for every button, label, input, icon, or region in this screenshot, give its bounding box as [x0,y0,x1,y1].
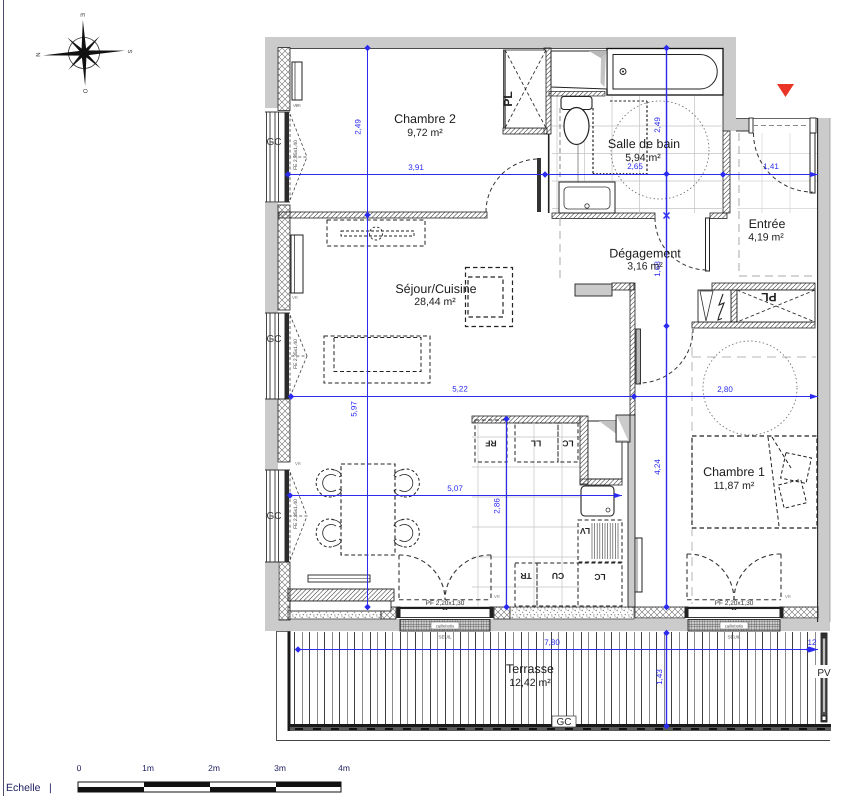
svg-text:1,41: 1,41 [763,162,779,171]
svg-text:VR: VR [494,594,500,599]
svg-text:0: 0 [77,763,82,773]
svg-text:N: N [34,52,41,57]
svg-text:S: S [126,49,133,53]
svg-text:5,22: 5,22 [452,385,468,394]
svg-text:LC: LC [594,572,605,582]
svg-text:PL: PL [501,91,515,106]
svg-text:VR: VR [293,103,299,108]
svg-text:PV: PV [817,668,831,679]
svg-text:TR: TR [520,571,531,581]
svg-text:2,80: 2,80 [717,385,733,394]
svg-text:GC: GC [267,334,282,345]
svg-text:VR: VR [292,295,298,300]
svg-text:GC: GC [557,717,572,728]
svg-text:VR: VR [295,461,301,466]
svg-text:GC: GC [267,137,282,148]
svg-text:3m: 3m [274,763,286,773]
svg-text:4,19 m²: 4,19 m² [748,232,784,244]
svg-text:Entrée: Entrée [749,217,786,231]
svg-text:PF 2,20x1,30: PF 2,20x1,30 [426,600,465,607]
svg-text:PL: PL [761,290,776,304]
svg-text:LV: LV [580,526,591,536]
svg-text:2,49: 2,49 [653,117,662,133]
svg-text:4m: 4m [338,763,350,773]
svg-text:5,07: 5,07 [447,484,463,493]
svg-text:12,42 m²: 12,42 m² [509,677,551,689]
svg-text:Chambre 2: Chambre 2 [394,112,456,126]
svg-text:FE 2,35x1,40: FE 2,35x1,40 [293,499,299,529]
svg-text:3,16 m²: 3,16 m² [627,261,663,273]
svg-text:2,49: 2,49 [354,119,363,135]
svg-text:FE 2,35x1,40: FE 2,35x1,40 [293,140,299,170]
svg-text:3,91: 3,91 [408,163,424,172]
svg-text:12: 12 [808,638,817,647]
svg-text:4,24: 4,24 [653,459,662,475]
svg-text:O: O [81,89,88,94]
svg-text:E: E [79,13,86,17]
svg-text:FE 2,35x1,40: FE 2,35x1,40 [293,339,299,369]
svg-text:2m: 2m [208,763,220,773]
svg-text:Séjour/Cuisine: Séjour/Cuisine [395,282,476,296]
svg-text:|: | [49,782,52,794]
svg-text:5,97: 5,97 [350,401,359,417]
svg-text:GC: GC [267,511,282,522]
svg-text:caillebotis: caillebotis [436,623,454,628]
svg-text:SEUIL: SEUIL [727,635,741,640]
svg-text:9,72 m²: 9,72 m² [407,127,443,139]
svg-text:RF: RF [485,439,496,449]
svg-text:PF 2,20x1,30: PF 2,20x1,30 [715,600,754,607]
svg-text:CU: CU [552,571,564,581]
svg-text:Dégagement: Dégagement [609,247,681,261]
svg-text:1,43: 1,43 [655,669,664,685]
svg-text:caillebotis: caillebotis [725,623,743,628]
svg-text:2,86: 2,86 [493,498,502,514]
svg-text:11,87 m²: 11,87 m² [714,480,755,492]
svg-text:5,94 m²: 5,94 m² [625,152,661,164]
svg-text:LC: LC [562,439,573,449]
svg-text:Chambre 1: Chambre 1 [703,465,765,479]
svg-text:28,44 m²: 28,44 m² [414,296,456,308]
svg-text:7,80: 7,80 [544,638,560,647]
svg-text:Salle de bain: Salle de bain [608,137,680,151]
svg-text:Echelle: Echelle [6,782,41,794]
svg-text:Terrasse: Terrasse [506,662,554,676]
svg-text:LL: LL [531,439,541,449]
svg-text:1m: 1m [142,763,154,773]
svg-text:VR: VR [785,594,791,599]
